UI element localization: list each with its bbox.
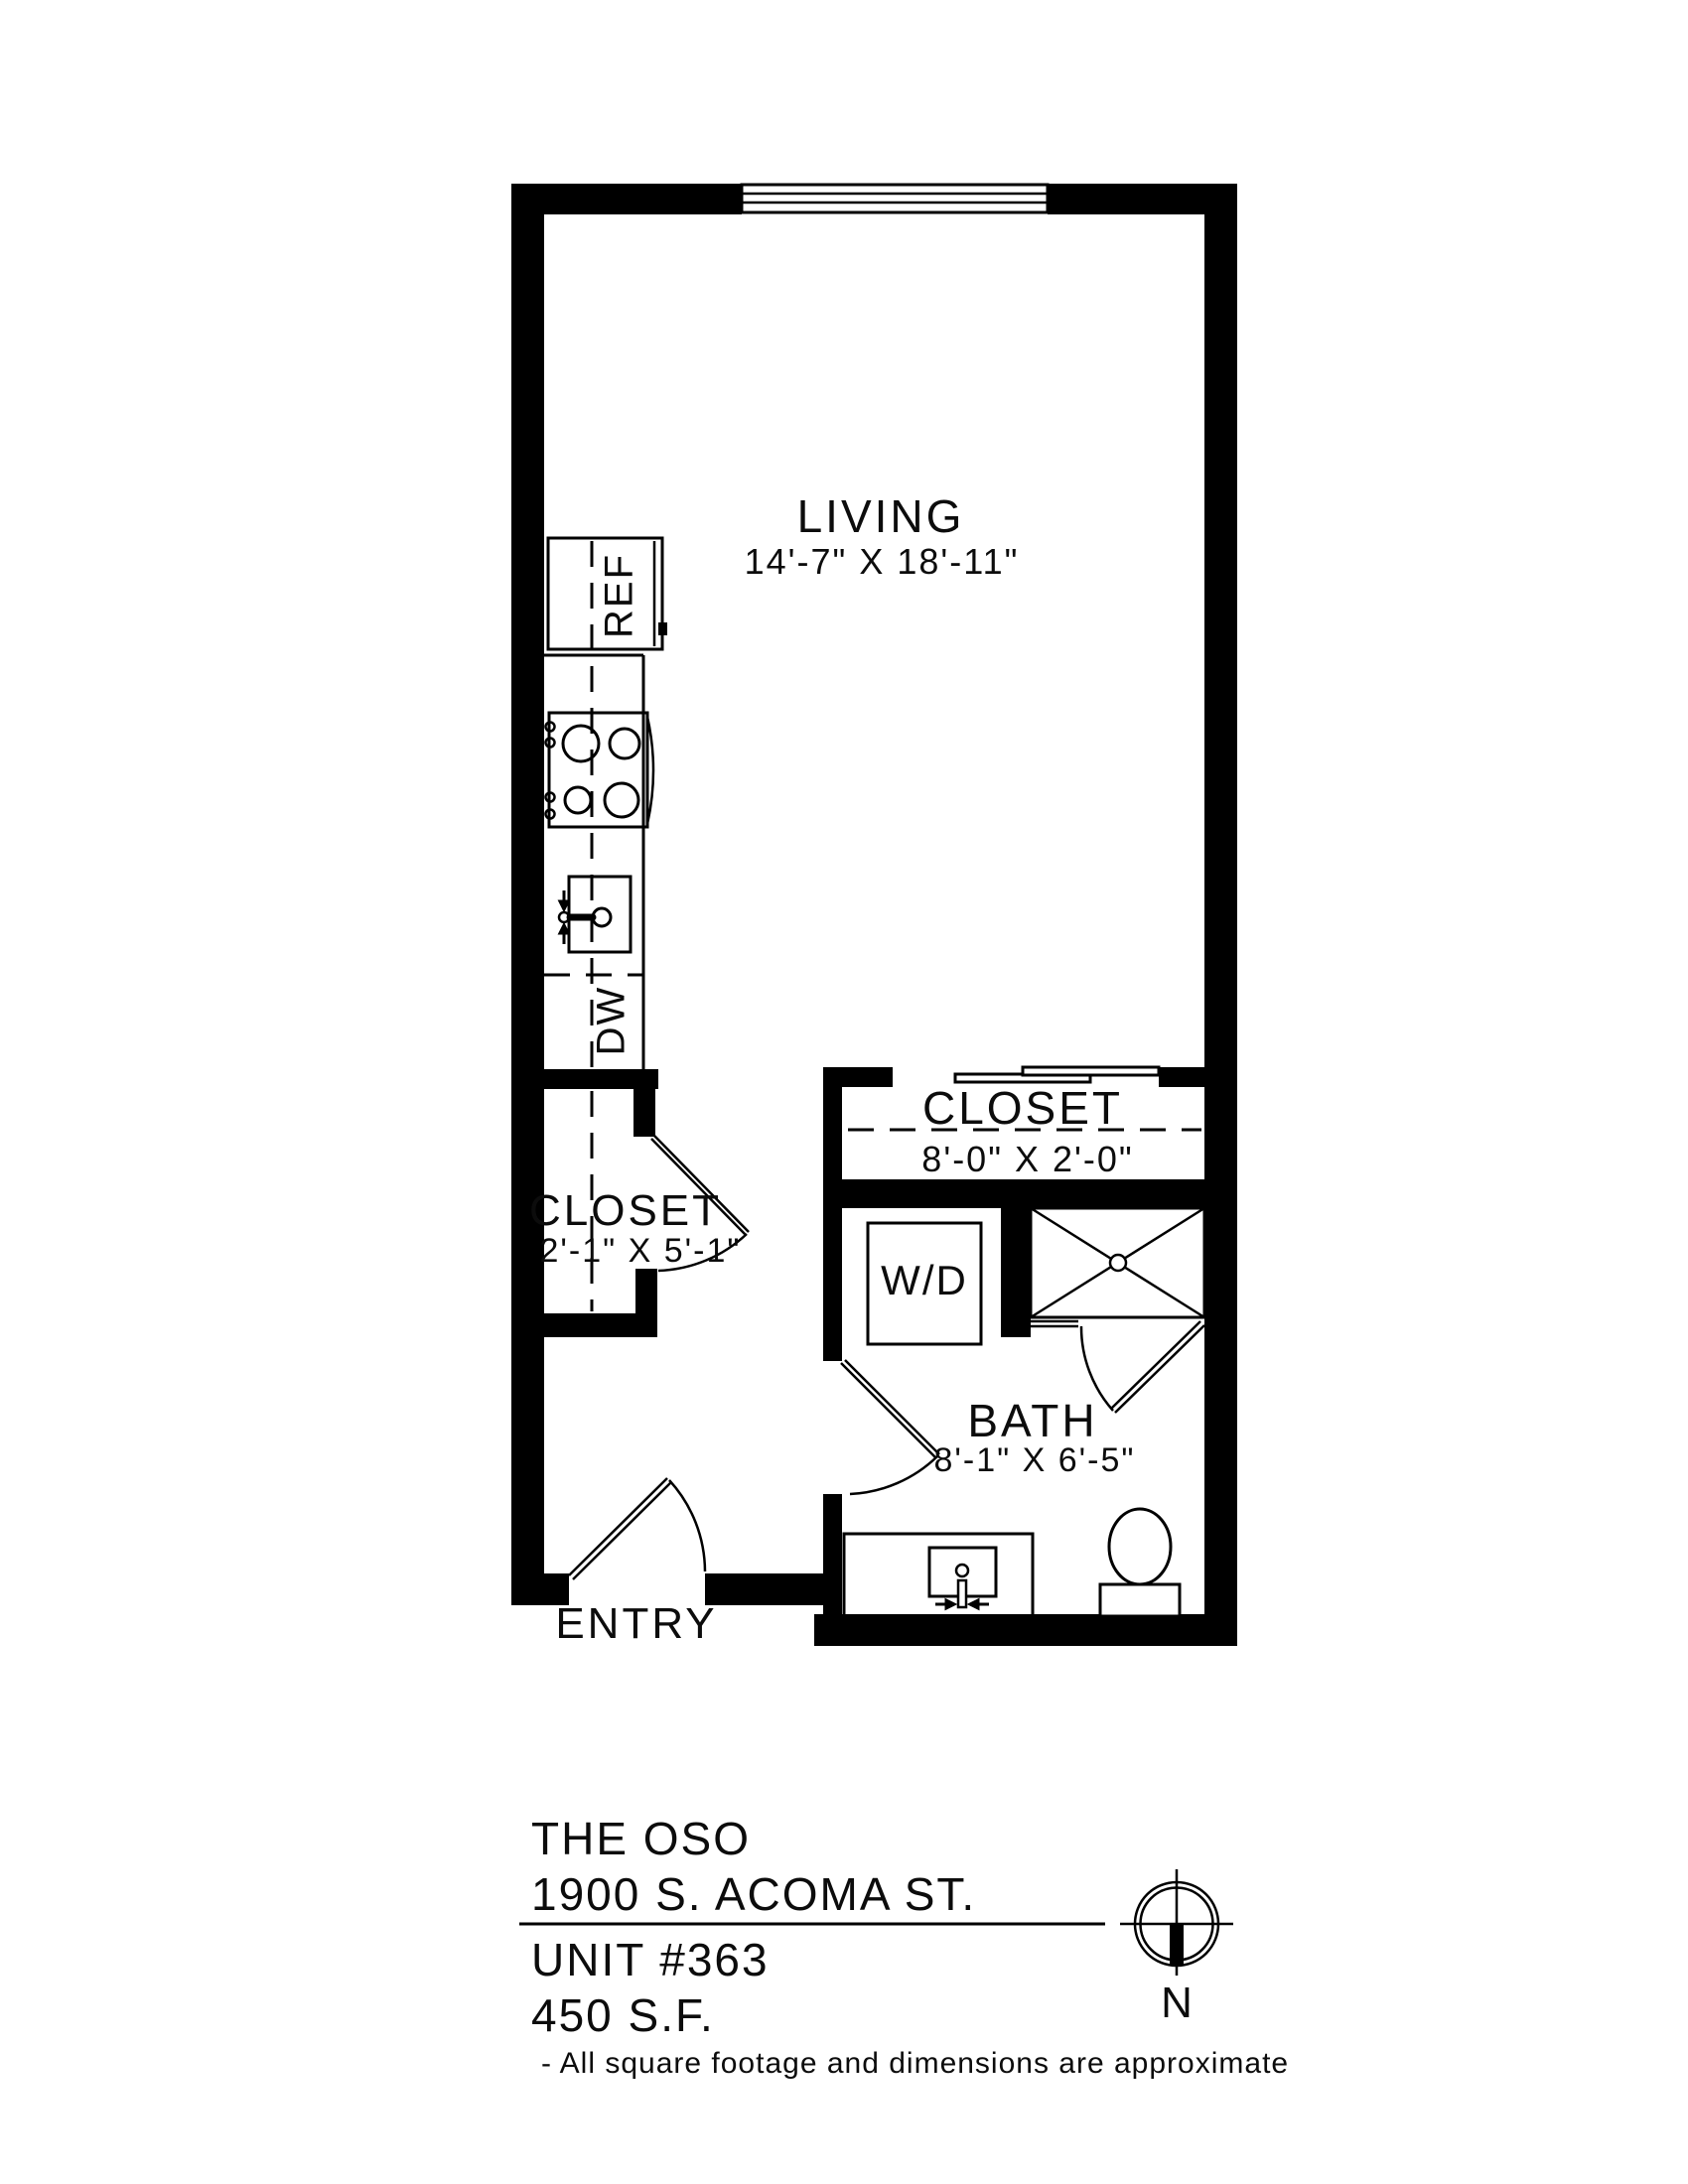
burner (610, 729, 639, 758)
entry-door-swing (569, 1478, 705, 1579)
floor-plan-page: REF DW (0, 0, 1688, 2184)
north-label: N (1161, 1979, 1193, 2027)
shower-door-swing (1081, 1321, 1204, 1413)
north-compass: N (1120, 1869, 1233, 2027)
wall-closet-top-right-stub (1159, 1067, 1204, 1087)
kitchen: REF DW (544, 538, 667, 1069)
refrigerator-label: REF (598, 553, 641, 638)
window-frame (742, 185, 1048, 212)
wall-left-closet-stub-lower (635, 1269, 657, 1313)
wall-hall-bath-lower (823, 1494, 842, 1646)
wall-top-left (511, 184, 742, 214)
closet-left-label: CLOSET (529, 1186, 722, 1235)
wall-closet-top-left-stub (823, 1067, 893, 1087)
door-arc (669, 1480, 705, 1571)
closet-right-label: CLOSET (922, 1082, 1123, 1134)
area: 450 S.F. (531, 1989, 715, 2041)
unit-number: UNIT #363 (531, 1934, 770, 1985)
closet-right-dims: 8'-0" X 2'-0" (921, 1139, 1133, 1179)
wall-wd-shower-divider (1001, 1208, 1031, 1337)
floor-plan-drawing: REF DW (0, 0, 1688, 2184)
toilet (1100, 1509, 1180, 1616)
wall-entry-bottom-right (705, 1573, 842, 1605)
toilet-bowl (1109, 1509, 1171, 1584)
shower-drain (1110, 1255, 1126, 1271)
vanity-faucet-stem (958, 1580, 966, 1607)
wall-left-closet-stub-upper (633, 1089, 655, 1137)
burner (563, 726, 599, 761)
window (742, 185, 1048, 212)
bath-dims: 8'-1" X 6'-5" (934, 1441, 1136, 1479)
door-arc (850, 1456, 937, 1494)
sliding-door-panel-far (1023, 1067, 1159, 1075)
entry-label: ENTRY (555, 1599, 717, 1648)
compass-needle (1170, 1924, 1184, 1965)
walls (511, 184, 1237, 1646)
burner (605, 783, 638, 817)
wall-right (1204, 184, 1237, 1646)
washer-dryer-label: W/D (881, 1257, 968, 1303)
disclaimer-note: - All square footage and dimensions are … (541, 2047, 1289, 2080)
bath-label: BATH (967, 1395, 1097, 1446)
address: 1900 S. ACOMA ST. (531, 1868, 976, 1920)
wall-bath-bottom (814, 1614, 1237, 1646)
vanity (844, 1534, 1033, 1616)
dishwasher-label: DW (590, 986, 633, 1056)
wall-closet-bottom (823, 1179, 1204, 1208)
living-label: LIVING (797, 490, 965, 542)
shower (1031, 1208, 1204, 1413)
toilet-tank (1100, 1584, 1180, 1616)
wall-left-closet-top (544, 1069, 658, 1089)
building-name: THE OSO (531, 1813, 751, 1864)
wall-left (511, 184, 544, 1605)
bath-door-swing (841, 1360, 939, 1494)
wall-left-closet-bottom (544, 1313, 657, 1337)
vanity-faucet (956, 1565, 968, 1576)
living-dims: 14'-7" X 18'-11" (745, 541, 1020, 582)
closet-left-dims: 2'-1" X 5'-1" (540, 1232, 742, 1270)
burner (565, 787, 591, 813)
wall-hall-bath-upper (823, 1067, 842, 1361)
refrigerator-handle (658, 622, 667, 635)
